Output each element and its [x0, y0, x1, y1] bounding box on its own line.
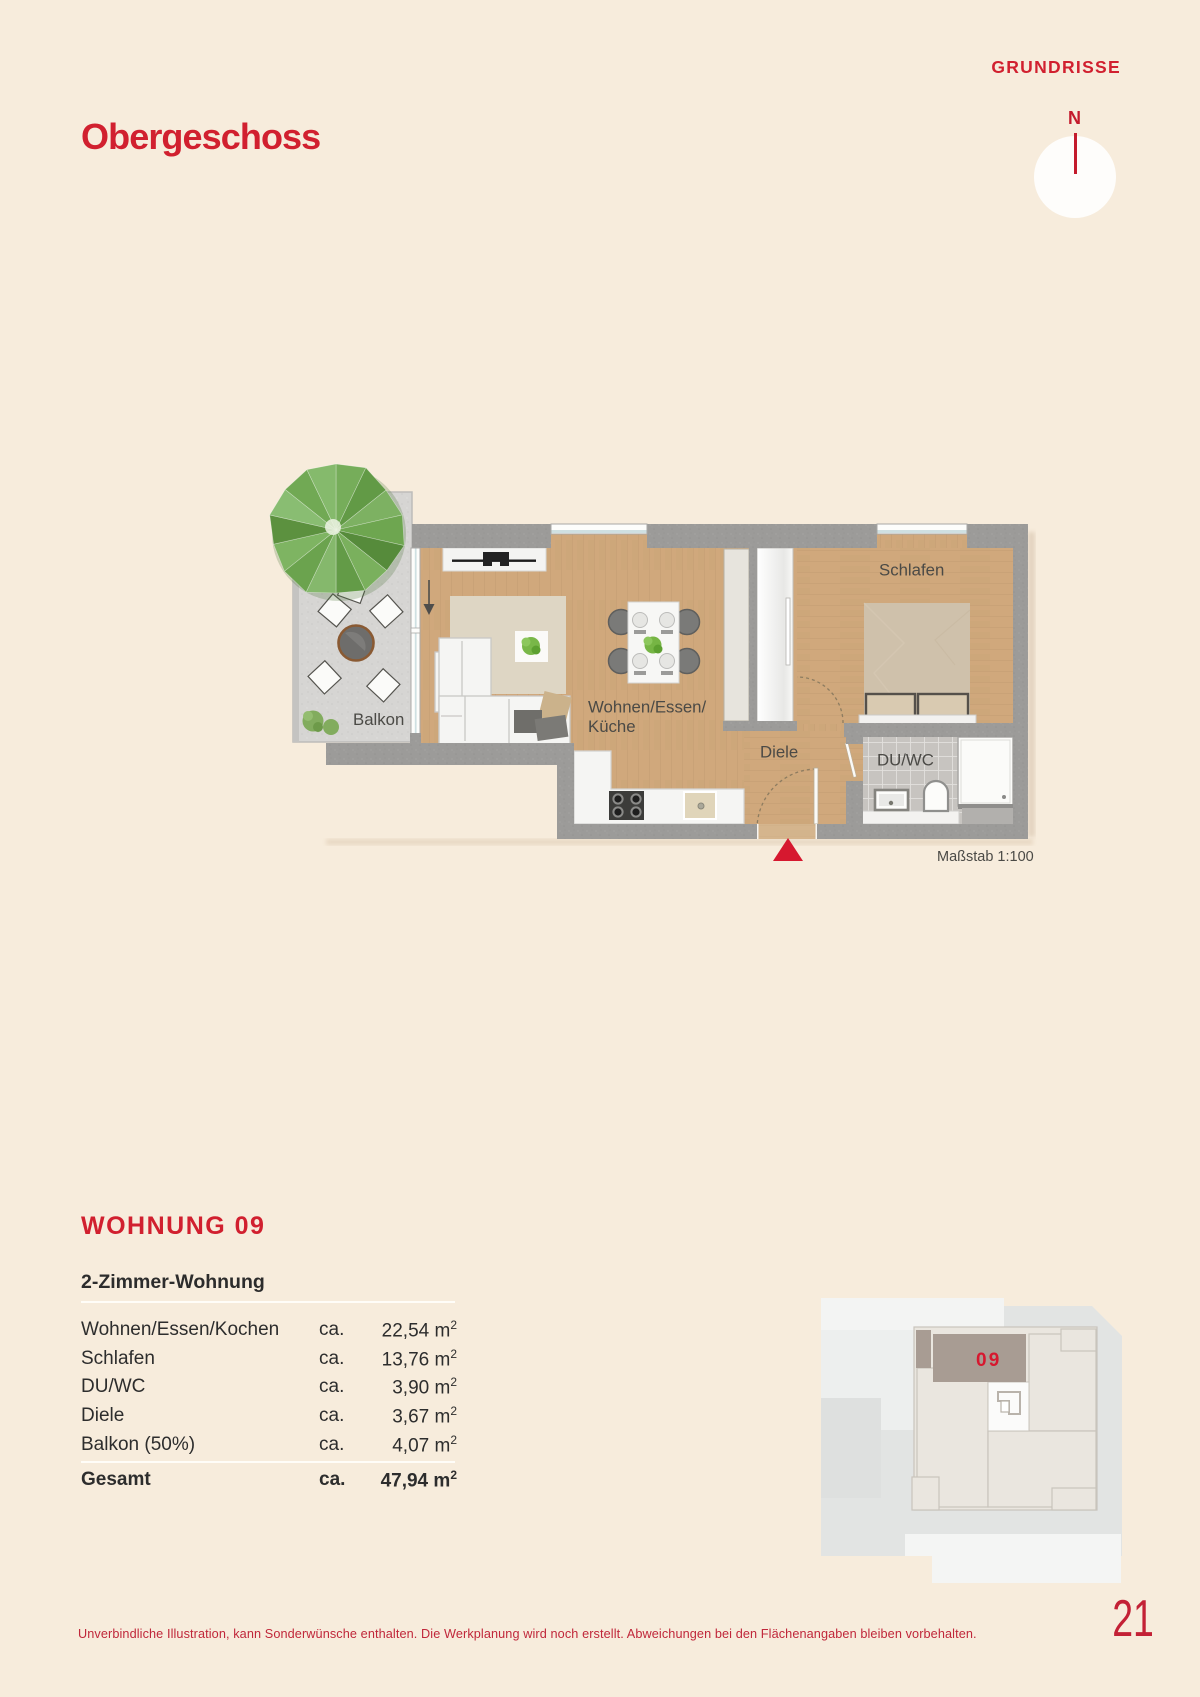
svg-text:09: 09	[976, 1350, 1002, 1371]
